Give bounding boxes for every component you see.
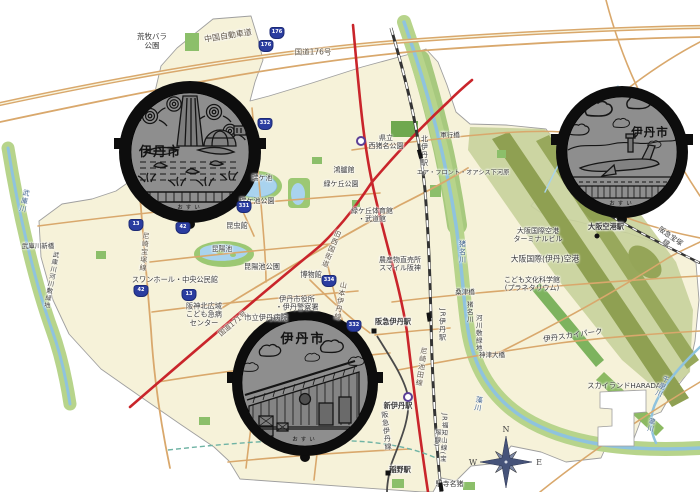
- compass-e: E: [536, 458, 542, 467]
- manhole-city-text: 伊丹市: [279, 331, 325, 347]
- compass-n: N: [503, 425, 510, 434]
- itami-city-map: 伊丹市 おすい 伊丹市 おすい: [0, 0, 700, 492]
- manhole-city-text: 伊丹市: [630, 125, 669, 139]
- basemap-svg: 伊丹市 おすい 伊丹市 おすい: [0, 0, 700, 492]
- manhole-osui-text: おすい: [609, 200, 635, 207]
- compass-w: W: [469, 458, 478, 467]
- manhole-city-text: 伊丹市: [138, 144, 181, 160]
- manhole-osui-text: おすい: [292, 436, 318, 443]
- manhole-osui-text: おすい: [177, 204, 203, 211]
